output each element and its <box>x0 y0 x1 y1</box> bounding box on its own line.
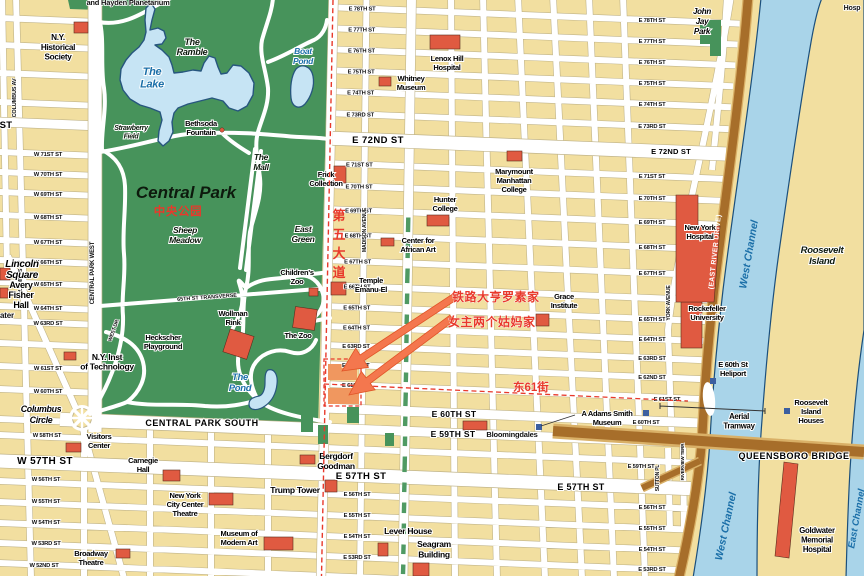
svg-text:SeagramBuilding: SeagramBuilding <box>417 539 452 560</box>
svg-text:W 68TH ST: W 68TH ST <box>34 215 63 221</box>
svg-text:Bloomingdales: Bloomingdales <box>486 430 537 439</box>
svg-text:E 74TH ST: E 74TH ST <box>639 102 667 108</box>
svg-text:W 61ST ST: W 61ST ST <box>34 366 63 372</box>
svg-text:W 57TH ST: W 57TH ST <box>17 456 73 467</box>
svg-text:E 78TH ST: E 78TH ST <box>639 18 667 24</box>
svg-text:E 56TH ST: E 56TH ST <box>344 492 372 498</box>
svg-text:E 54TH ST: E 54TH ST <box>639 547 667 553</box>
svg-text:VisitorsCenter: VisitorsCenter <box>87 432 112 450</box>
svg-text:Museum ofModern Art: Museum ofModern Art <box>221 529 259 547</box>
svg-text:RockefellerUniversity: RockefellerUniversity <box>688 304 726 322</box>
svg-text:Trump Tower: Trump Tower <box>270 485 320 495</box>
svg-text:CENTRAL PARK SOUTH: CENTRAL PARK SOUTH <box>145 418 258 428</box>
svg-text:E 73RD ST: E 73RD ST <box>346 112 374 118</box>
svg-text:E 54TH ST: E 54TH ST <box>344 534 372 540</box>
svg-text:MADISON AVENUE: MADISON AVENUE <box>362 207 368 252</box>
svg-text:BoatPond: BoatPond <box>293 46 314 66</box>
svg-text:E 69TH ST: E 69TH ST <box>639 220 667 226</box>
svg-text:E 64TH ST: E 64TH ST <box>343 325 371 331</box>
svg-text:E 60TH ST: E 60TH ST <box>633 420 661 426</box>
svg-text:GoldwaterMemorialHospital: GoldwaterMemorialHospital <box>799 526 835 554</box>
svg-text:BethsodaFountain: BethsodaFountain <box>185 119 218 137</box>
svg-text:E 76TH ST: E 76TH ST <box>639 60 667 66</box>
svg-text:Center forAfrican Art: Center forAfrican Art <box>400 236 436 254</box>
svg-text:E 70TH ST: E 70TH ST <box>345 184 373 190</box>
svg-text:COLUMBUS AV: COLUMBUS AV <box>12 78 18 117</box>
svg-text:SUTTON PL: SUTTON PL <box>655 465 661 492</box>
svg-text:ater: ater <box>0 311 14 320</box>
svg-text:E 56TH ST: E 56TH ST <box>639 505 667 511</box>
svg-text:TempleEmanu-El: TempleEmanu-El <box>355 276 387 294</box>
svg-text:HeckscherPlayground: HeckscherPlayground <box>144 333 183 351</box>
svg-text:中央公园: 中央公园 <box>154 204 202 218</box>
svg-text:W 56TH ST: W 56TH ST <box>32 477 61 483</box>
svg-text:E 71ST ST: E 71ST ST <box>639 174 666 180</box>
svg-text:W 71ST ST: W 71ST ST <box>34 152 63 158</box>
svg-text:E 64TH ST: E 64TH ST <box>639 337 667 343</box>
svg-text:东61街: 东61街 <box>513 380 549 394</box>
svg-text:E 75TH ST: E 75TH ST <box>348 69 376 75</box>
svg-text:E 70TH ST: E 70TH ST <box>639 196 667 202</box>
svg-text:E 73RD ST: E 73RD ST <box>638 124 666 130</box>
svg-text:E 60TH ST: E 60TH ST <box>432 409 477 419</box>
svg-text:New YorkHospital: New YorkHospital <box>684 223 716 241</box>
svg-text:E 76TH ST: E 76TH ST <box>348 49 376 55</box>
svg-text:BergdorfGoodman: BergdorfGoodman <box>317 451 355 471</box>
svg-text:TheLake: TheLake <box>140 66 164 91</box>
svg-text:E 72ND ST: E 72ND ST <box>352 135 404 146</box>
svg-text:and Hayden Planetarium: and Hayden Planetarium <box>86 0 170 7</box>
svg-text:E 55TH ST: E 55TH ST <box>639 526 667 532</box>
svg-text:E 65TH ST: E 65TH ST <box>343 305 371 311</box>
svg-text:E 65TH ST: E 65TH ST <box>639 317 667 323</box>
svg-text:E 62ND ST: E 62ND ST <box>638 375 666 381</box>
svg-text:Lenox HillHospital: Lenox HillHospital <box>431 54 464 72</box>
svg-text:E 69TH ST: E 69TH ST <box>345 208 373 214</box>
svg-text:E 59TH ST: E 59TH ST <box>628 464 656 470</box>
svg-text:E 59TH ST: E 59TH ST <box>431 429 476 439</box>
svg-text:E 68TH ST: E 68TH ST <box>639 245 667 251</box>
svg-text:GraceInstitute: GraceInstitute <box>551 292 578 310</box>
svg-text:W 70TH ST: W 70TH ST <box>34 172 63 178</box>
svg-text:EastGreen: EastGreen <box>291 224 314 244</box>
svg-text:E 57TH ST: E 57TH ST <box>557 482 604 492</box>
svg-text:W 52ND ST: W 52ND ST <box>29 563 59 569</box>
svg-text:Central Park: Central Park <box>136 183 238 202</box>
svg-text:W 63RD ST: W 63RD ST <box>33 321 63 327</box>
svg-text:E 60th StHeliport: E 60th StHeliport <box>718 360 748 378</box>
svg-text:E 77TH ST: E 77TH ST <box>348 28 376 34</box>
svg-text:E 67TH ST: E 67TH ST <box>639 271 667 277</box>
svg-text:RIVERVIEW TERR: RIVERVIEW TERR <box>680 443 685 481</box>
svg-text:The Zoo: The Zoo <box>284 331 312 340</box>
svg-text:TheMall: TheMall <box>253 152 269 172</box>
svg-text:E 57TH ST: E 57TH ST <box>336 471 387 482</box>
svg-text:YORK AVENUE: YORK AVENUE <box>666 285 672 321</box>
svg-text:E 55TH ST: E 55TH ST <box>344 513 372 519</box>
svg-text:女主两个姑妈家: 女主两个姑妈家 <box>448 314 536 329</box>
svg-text:W 69TH ST: W 69TH ST <box>34 192 63 198</box>
svg-text:QUEENSBORO BRIDGE: QUEENSBORO BRIDGE <box>738 451 849 461</box>
svg-text:第: 第 <box>332 208 345 223</box>
svg-text:W 58TH ST: W 58TH ST <box>33 433 62 439</box>
svg-text:W 53RD ST: W 53RD ST <box>31 541 61 547</box>
svg-text:W 64TH ST: W 64TH ST <box>34 306 63 312</box>
svg-text:E 72ND ST: E 72ND ST <box>651 147 691 156</box>
svg-text:E 77TH ST: E 77TH ST <box>639 39 667 45</box>
svg-text:W 60TH ST: W 60TH ST <box>34 389 63 395</box>
svg-text:Hosp: Hosp <box>844 5 861 12</box>
svg-text:HunterCollege: HunterCollege <box>433 195 458 213</box>
svg-text:W 55TH ST: W 55TH ST <box>32 499 61 505</box>
svg-text:W 54TH ST: W 54TH ST <box>32 520 61 526</box>
svg-text:E 53RD ST: E 53RD ST <box>638 567 666 573</box>
svg-text:W 67TH ST: W 67TH ST <box>34 240 63 246</box>
svg-text:CENTRAL PARK WEST: CENTRAL PARK WEST <box>90 241 96 304</box>
svg-text:E 67TH ST: E 67TH ST <box>344 259 372 265</box>
svg-text:WhitneyMuseum: WhitneyMuseum <box>397 74 426 92</box>
svg-text:W 65TH ST: W 65TH ST <box>34 282 63 288</box>
svg-text:铁路大亨罗素家: 铁路大亨罗素家 <box>452 289 540 304</box>
svg-text:ST: ST <box>0 120 12 131</box>
svg-text:E 71ST ST: E 71ST ST <box>346 162 373 168</box>
svg-text:E 63RD ST: E 63RD ST <box>638 356 666 362</box>
svg-text:E 78TH ST: E 78TH ST <box>349 7 377 13</box>
svg-text:E 74TH ST: E 74TH ST <box>347 90 375 96</box>
svg-text:E 75TH ST: E 75TH ST <box>639 81 667 87</box>
svg-text:E 53RD ST: E 53RD ST <box>343 555 371 561</box>
svg-text:LincolnSquare: LincolnSquare <box>5 259 39 281</box>
svg-text:道: 道 <box>332 265 345 280</box>
svg-text:大: 大 <box>332 246 345 261</box>
svg-text:五: 五 <box>332 227 345 242</box>
svg-text:Lever House: Lever House <box>384 526 432 536</box>
